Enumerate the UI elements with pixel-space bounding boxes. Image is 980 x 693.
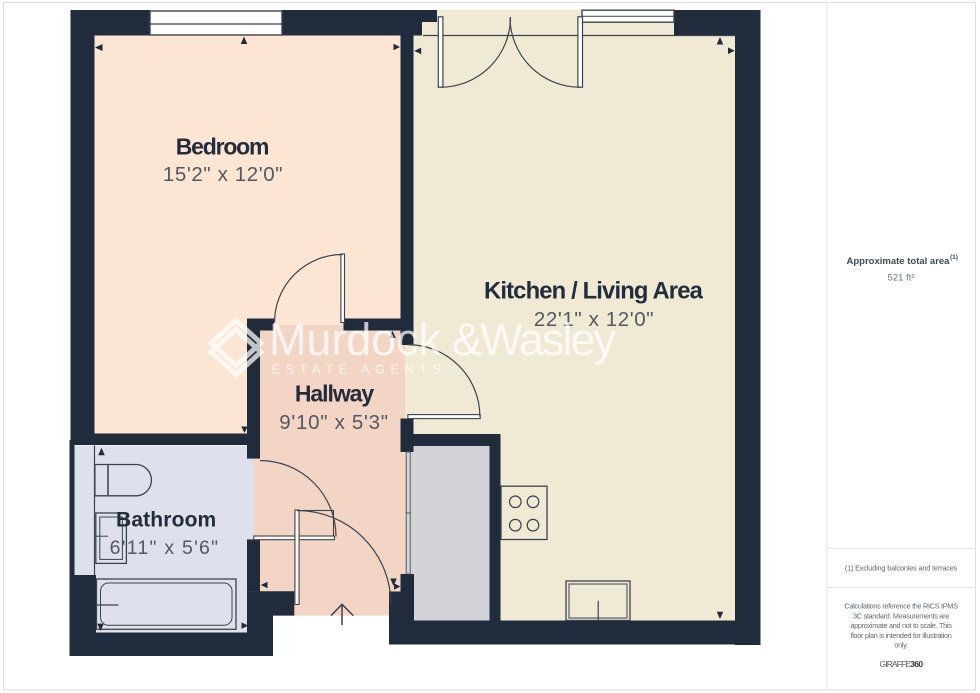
svg-text:Approximate total area: Approximate total area — [847, 256, 951, 267]
svg-text:9'10" x 5'3": 9'10" x 5'3" — [279, 411, 388, 434]
svg-text:Bathroom: Bathroom — [116, 508, 216, 531]
svg-text:521 ft²: 521 ft² — [888, 273, 915, 284]
svg-text:Kitchen / Living Area: Kitchen / Living Area — [484, 278, 704, 305]
svg-text:floor plan is intended for ill: floor plan is intended for illustration — [850, 631, 951, 640]
svg-text:Hallway: Hallway — [295, 381, 375, 407]
svg-text:(1) Excluding balconies and te: (1) Excluding balconies and terraces — [845, 564, 958, 573]
svg-text:3C standard. Measurements are: 3C standard. Measurements are — [853, 611, 949, 620]
svg-text:ESTATE AGENTS: ESTATE AGENTS — [272, 362, 447, 377]
svg-text:6'11" x 5'6": 6'11" x 5'6" — [110, 537, 220, 559]
svg-text:only.: only. — [894, 641, 908, 650]
svg-text:GIRAFFE360: GIRAFFE360 — [880, 659, 924, 669]
svg-text:(1): (1) — [950, 254, 958, 261]
svg-text:15'2" x 12'0": 15'2" x 12'0" — [163, 163, 283, 186]
svg-text:Bedroom: Bedroom — [176, 134, 269, 160]
svg-text:approximate and not to scale.: approximate and not to scale. This — [850, 621, 952, 630]
svg-text:Calculations reference the RIC: Calculations reference the RICS IPMS — [844, 602, 958, 611]
